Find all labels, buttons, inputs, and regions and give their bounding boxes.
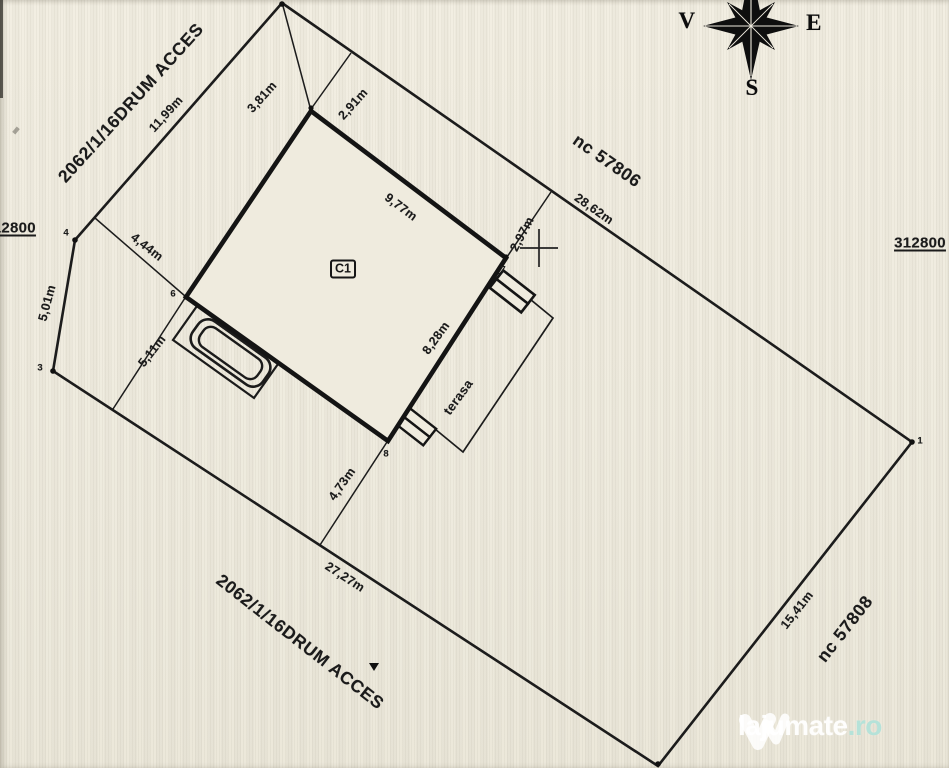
grid-coord-right: 312800 — [894, 235, 946, 252]
south-point-marker — [369, 663, 379, 671]
point-label-3: 3 — [37, 363, 42, 374]
watermark: lajumate.ro — [738, 710, 882, 742]
compass-east-label: E — [806, 10, 822, 36]
compass-rose-icon — [703, 0, 799, 80]
parcel-boundary — [53, 3, 912, 766]
point-label-1: 1 — [917, 436, 922, 447]
compass-west-label: V — [679, 8, 696, 34]
watermark-tld: .ro — [848, 710, 882, 741]
point-label-8: 8 — [383, 449, 388, 460]
point-label-7: 7 — [500, 265, 505, 276]
building-label: C1 — [330, 260, 356, 279]
scanned-cadastral-plan: V E S 312800 312800 2062/1/16DRUM ACCES … — [0, 0, 949, 768]
lajumate-logo-icon — [738, 710, 790, 758]
scan-edge-mark — [0, 0, 3, 98]
grid-coord-left: 312800 — [0, 220, 36, 237]
point-label-4: 4 — [63, 228, 68, 239]
point-label-6: 6 — [170, 289, 175, 300]
compass-south-label: S — [745, 75, 758, 101]
